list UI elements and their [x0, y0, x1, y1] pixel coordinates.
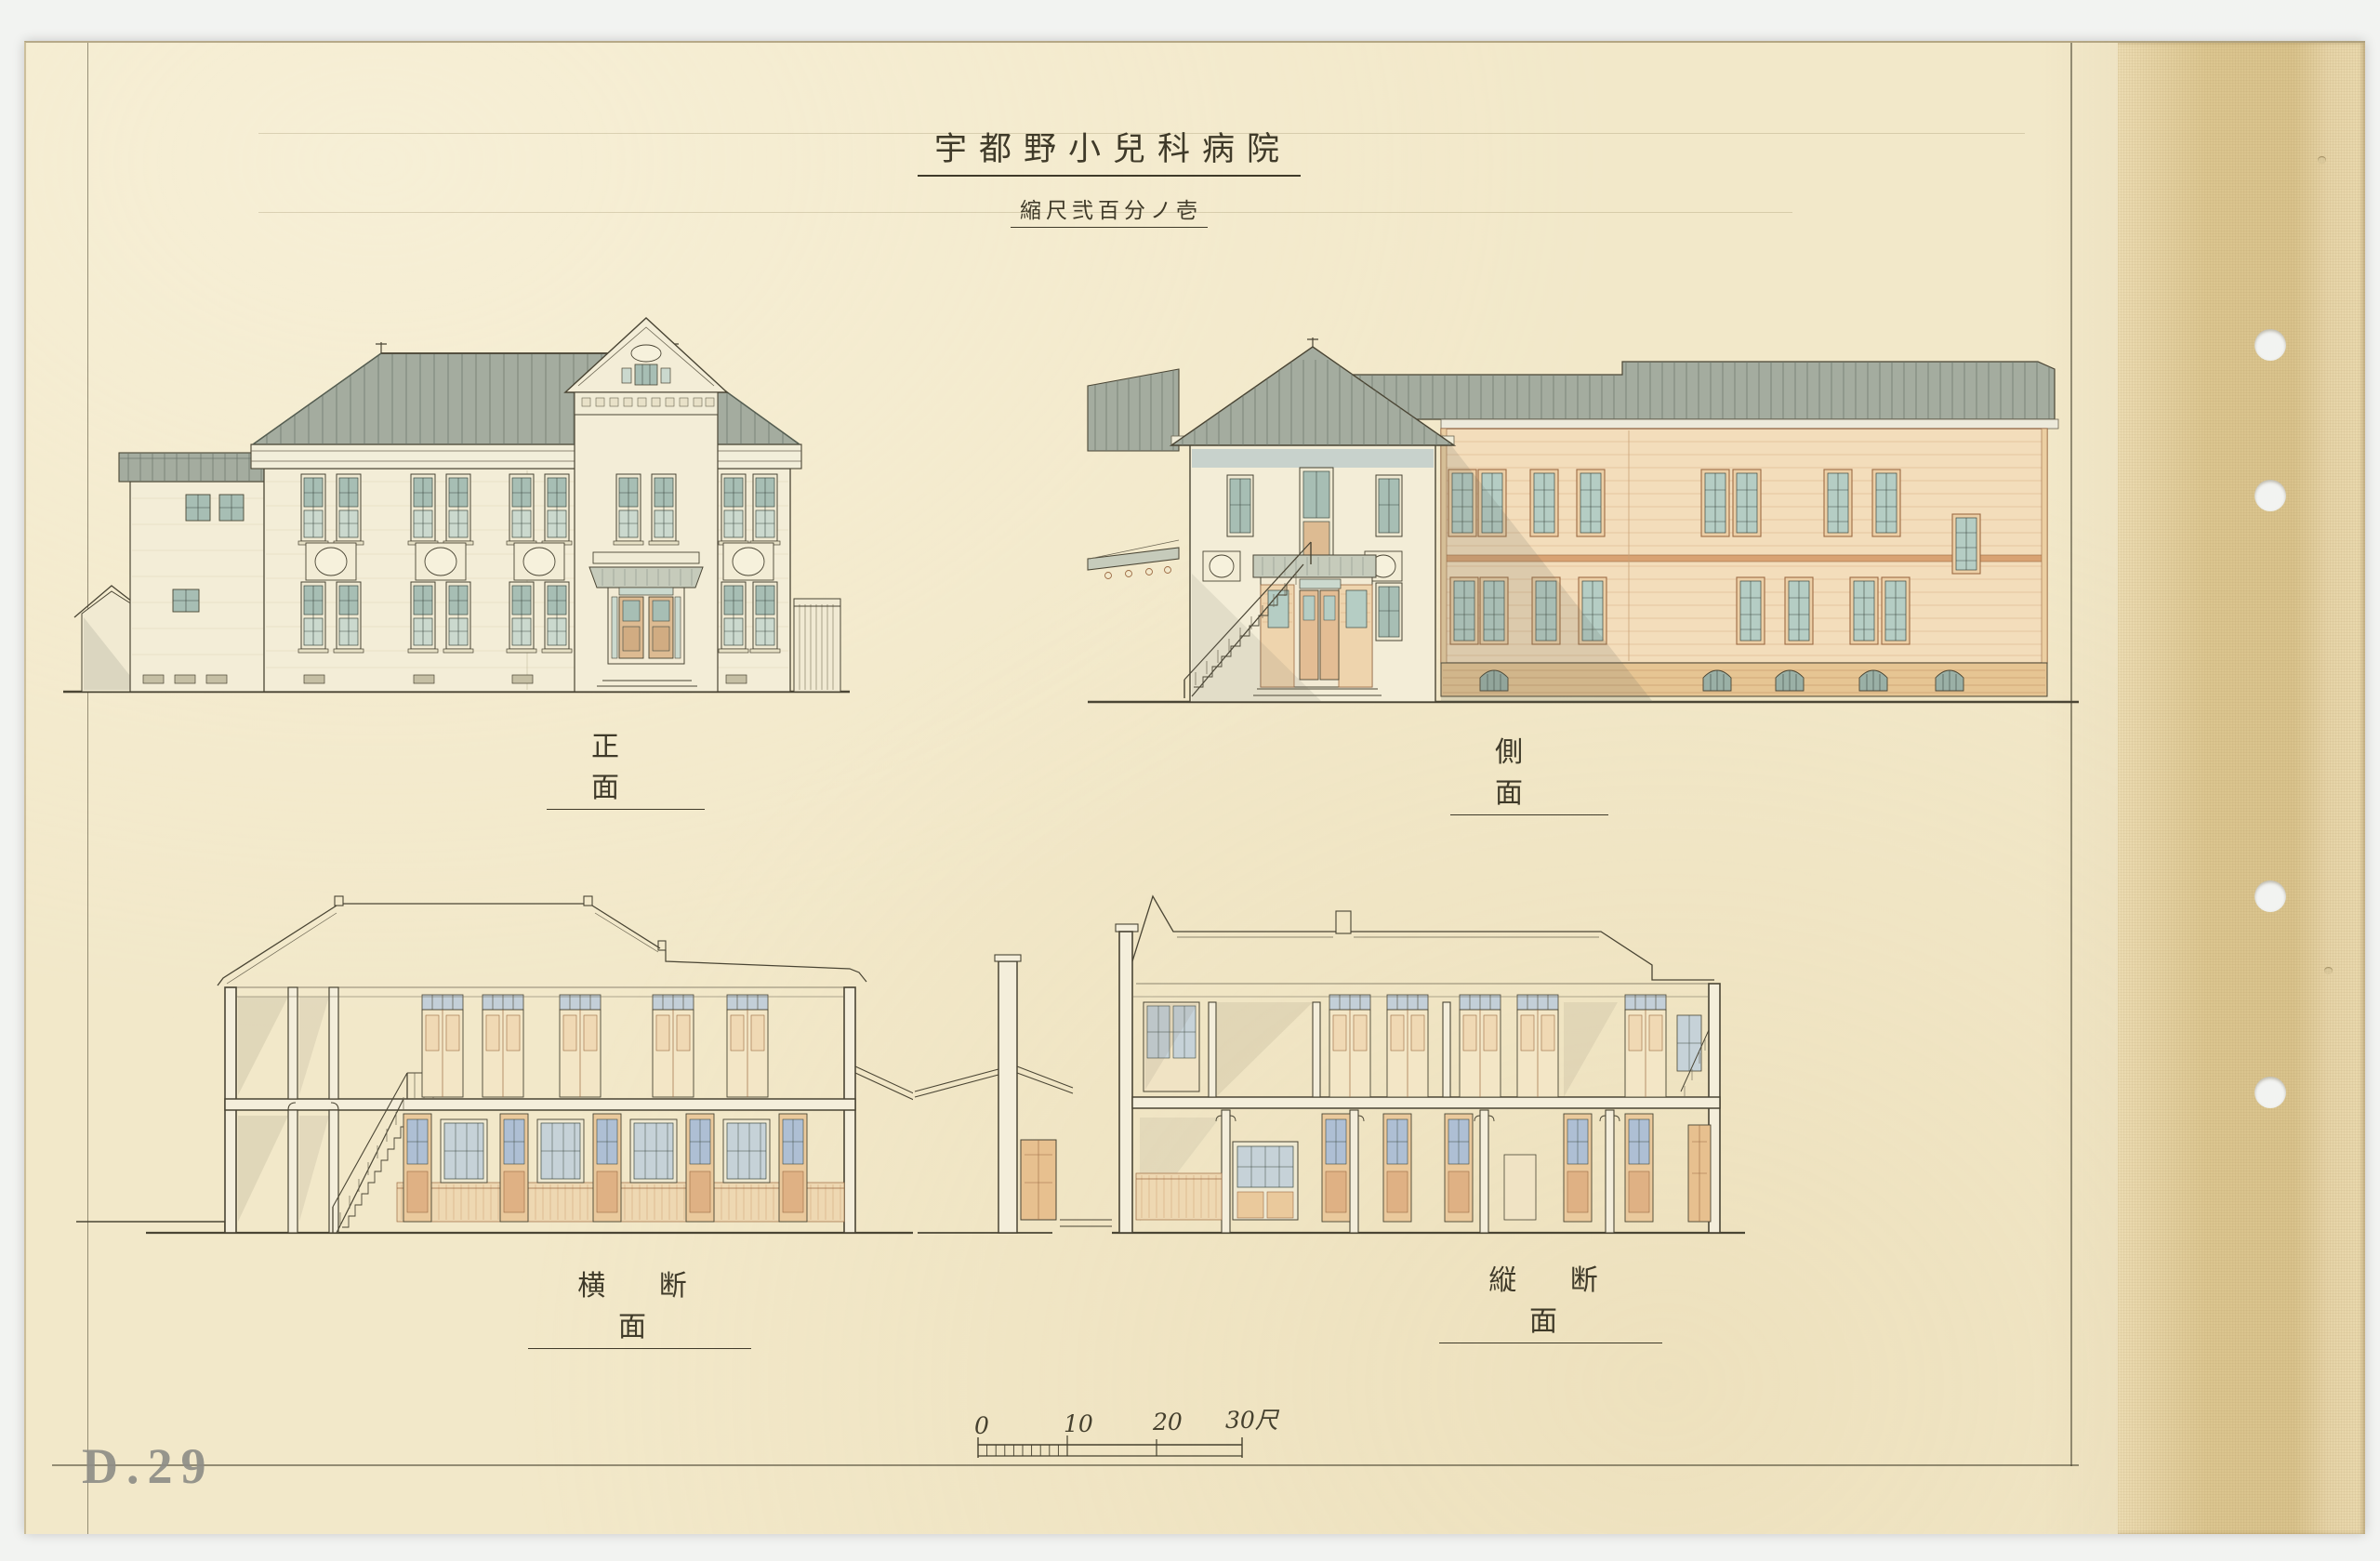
ward-wing [1441, 429, 2047, 702]
paper-flaw [2324, 967, 2333, 974]
scale-tick-10: 10 [1064, 1410, 1093, 1437]
cross-section-label: 横 断 面 [528, 1263, 751, 1349]
roof-outline [1116, 896, 1714, 984]
punch-hole [2254, 880, 2286, 912]
page-title: 宇都野小兒科病院 [918, 123, 1301, 177]
drawing-sheet: 宇都野小兒科病院 縮尺弐百分ノ壱 [24, 41, 2365, 1534]
punch-hole [2254, 329, 2286, 361]
scale-tick-30: 30尺 [1225, 1407, 1280, 1434]
scale-bar: 0 10 20 30尺 [950, 1396, 1303, 1480]
scale-ruler [978, 1435, 1242, 1458]
border-line [87, 43, 88, 1534]
title-block: 宇都野小兒科病院 縮尺弐百分ノ壱 [909, 123, 1309, 228]
binding-tape [2118, 43, 2365, 1534]
roof-outline [218, 896, 866, 987]
punch-hole [2254, 1077, 2286, 1108]
covered-way [915, 955, 1073, 1233]
scale-tick-20: 20 [1152, 1409, 1183, 1435]
longitudinal-section-label: 縦 断 面 [1439, 1257, 1662, 1343]
archive-stamp: D.29 [82, 1437, 215, 1495]
longitudinal-section-drawing [913, 876, 1768, 1266]
veranda-leanto [855, 1066, 913, 1233]
scale-note: 縮尺弐百分ノ壱 [1011, 192, 1208, 228]
fence [794, 599, 840, 692]
entrance-door [608, 588, 684, 664]
rear-roof-band [1088, 367, 1179, 451]
upper-floor-interior [236, 995, 844, 1097]
pediment-pavilion [565, 318, 727, 692]
ground-line [76, 1222, 913, 1233]
front-elevation-drawing [58, 271, 866, 708]
low-wide-window [1233, 1142, 1298, 1220]
scale-tick-0: 0 [974, 1412, 989, 1439]
punch-hole [2254, 480, 2286, 511]
lower-floor-interior [397, 1114, 844, 1222]
front-elevation-label: 正 面 [547, 723, 705, 810]
scanner-background: 宇都野小兒科病院 縮尺弐百分ノ壱 [0, 0, 2380, 1561]
paper-flaw [2318, 156, 2326, 164]
cross-section-drawing [58, 876, 913, 1266]
side-elevation-label: 側 面 [1450, 729, 1608, 815]
wing-roof [1324, 358, 2058, 429]
side-elevation-drawing [1080, 332, 2094, 718]
left-wing [119, 453, 273, 692]
porte-cochere-canopy [1088, 540, 1179, 579]
border-line [2070, 43, 2072, 1466]
